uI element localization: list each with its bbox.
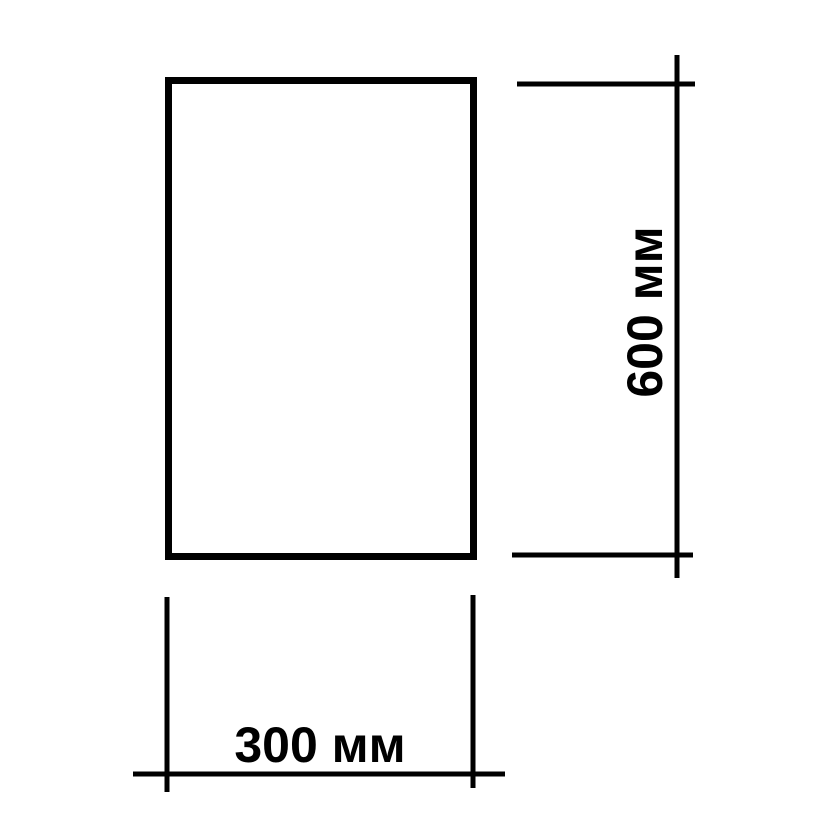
width-dimension-label: 300 мм (234, 717, 405, 773)
height-dimension-label: 600 мм (617, 226, 673, 397)
dimension-drawing-svg: 600 мм 300 мм (0, 0, 836, 836)
dimension-drawing: 600 мм 300 мм (0, 0, 836, 836)
rectangle-outline (169, 81, 474, 557)
